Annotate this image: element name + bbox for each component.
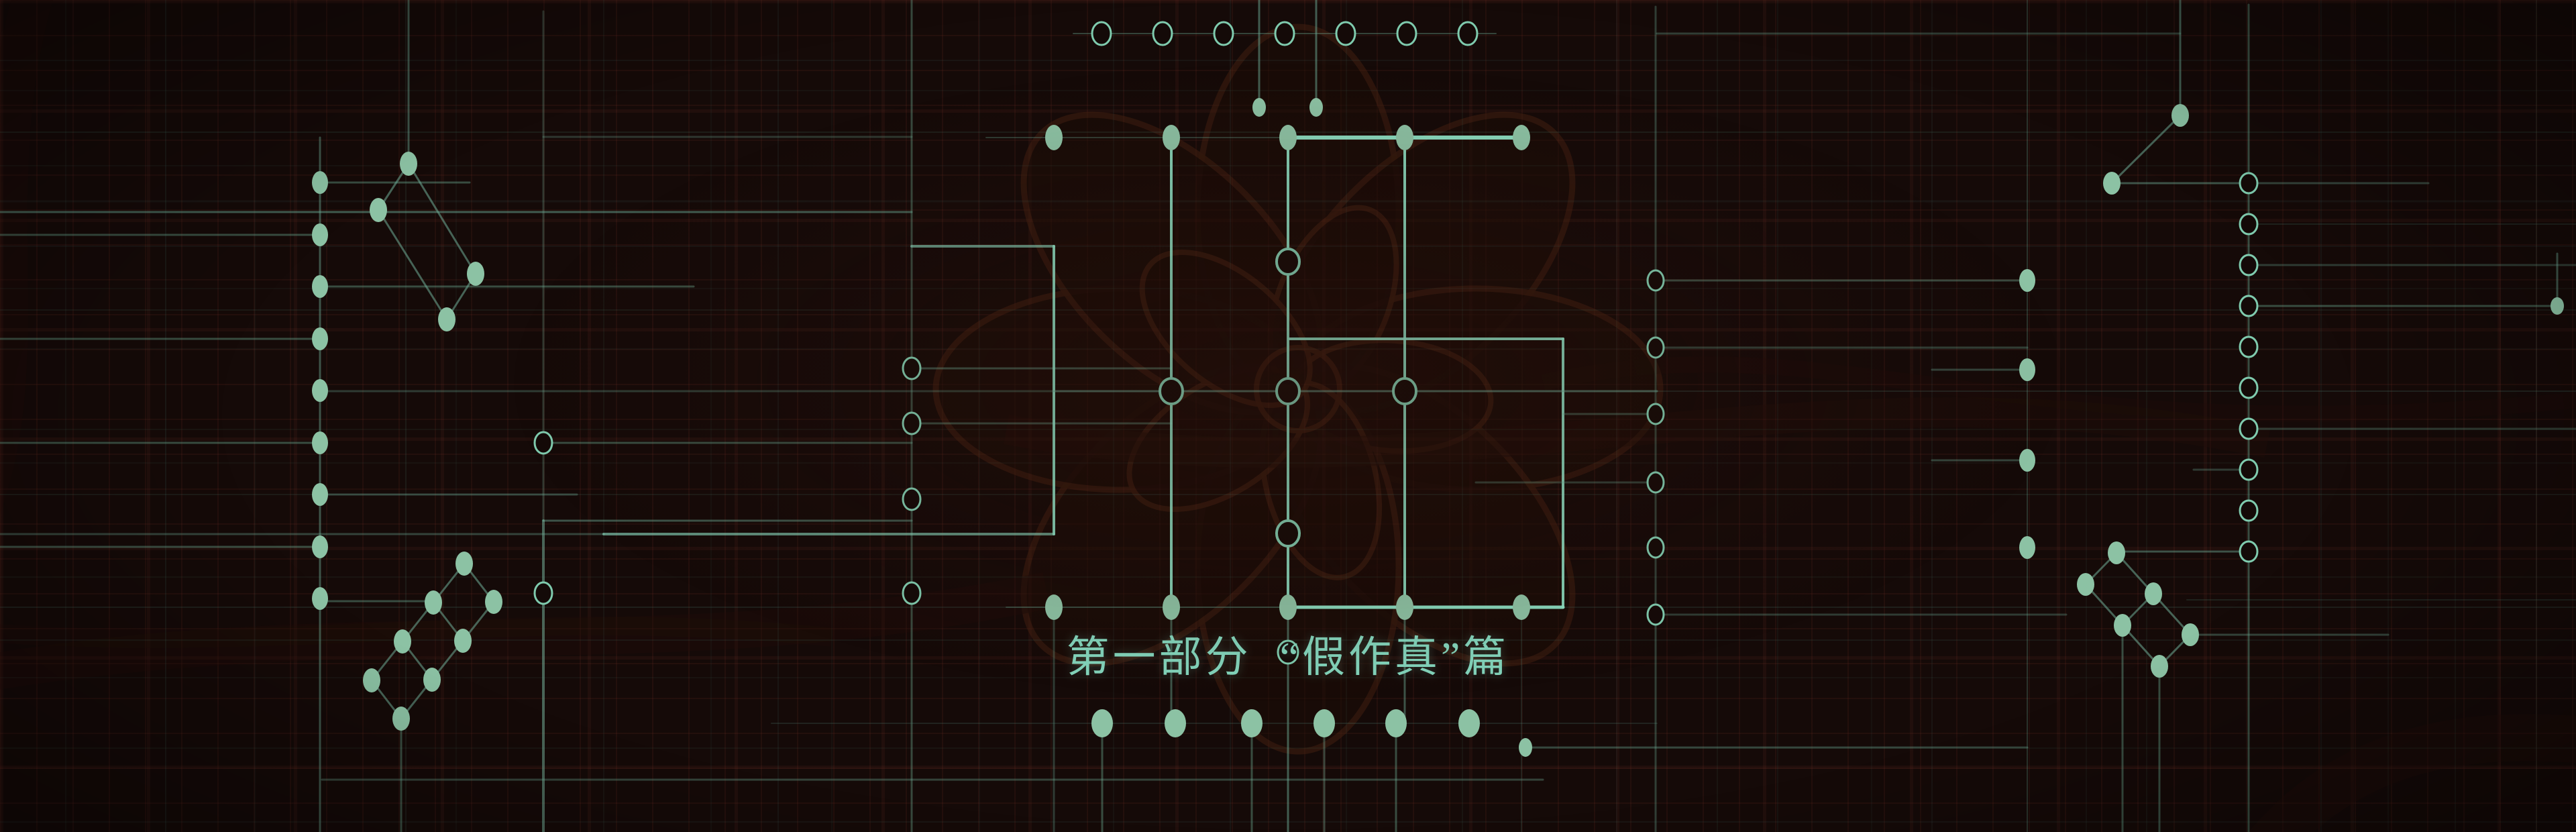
- circuit-node-ring: [903, 413, 920, 434]
- circuit-node-ring: [1648, 270, 1664, 291]
- circuit-node-dot: [1309, 98, 1323, 117]
- circuit-node-dot: [312, 223, 328, 246]
- circuit-node-dot: [1385, 709, 1407, 737]
- circuit-node-dot: [1513, 594, 1530, 620]
- circuit-node-dot: [2019, 358, 2035, 381]
- circuit-line: [409, 164, 476, 274]
- circuit-node-ring: [1393, 378, 1416, 404]
- circuit-node-ring: [1277, 521, 1299, 546]
- circuit-node-dot: [312, 587, 328, 610]
- circuit-node-ring: [1648, 472, 1664, 492]
- circuit-node-dot: [1396, 594, 1413, 620]
- circuit-node-dot: [1163, 594, 1180, 620]
- circuit-node-ring: [1277, 249, 1299, 274]
- circuit-node-ring: [1275, 22, 1294, 45]
- circuit-node-dot: [1241, 709, 1263, 737]
- circuit-node-ring: [903, 358, 920, 379]
- circuit-node-dot: [1045, 125, 1063, 150]
- circuit-node-ring: [2240, 501, 2257, 521]
- swoosh-left-edge: [0, 0, 40, 510]
- circuit-node-ring: [2240, 541, 2257, 562]
- circuit-node-dot: [1396, 125, 1413, 150]
- chapter-title-quote: “假作真”篇: [1280, 633, 1510, 681]
- circuit-node-dot: [370, 198, 387, 222]
- circuit-node-ring: [1277, 378, 1299, 404]
- circuit-node-ring: [535, 432, 552, 454]
- circuit-node-dot: [312, 327, 328, 350]
- circuit-node-dot: [1252, 98, 1266, 117]
- circuit-node-dot: [2551, 297, 2564, 315]
- circuit-node-dot: [455, 552, 473, 576]
- circuit-node-ring: [1092, 22, 1111, 45]
- circuit-node-ring: [2240, 419, 2257, 439]
- circuit-node-dot: [312, 171, 328, 194]
- circuit-node-dot: [425, 590, 442, 615]
- circuit-node-dot: [312, 535, 328, 558]
- circuit-node-ring: [1153, 22, 1172, 45]
- chapter-title-part: 第一部分: [1067, 633, 1252, 681]
- circuit-node-ring: [1458, 22, 1477, 45]
- circuit-node-dot: [1519, 738, 1532, 757]
- circuit-node-ring: [1397, 22, 1416, 45]
- circuit-node-dot: [2108, 541, 2125, 564]
- circuit-node-ring: [903, 582, 920, 604]
- circuit-node-dot: [2019, 269, 2035, 292]
- circuit-node-dot: [1513, 125, 1530, 150]
- circuit-node-dot: [1313, 709, 1335, 737]
- circuit-node-ring: [2240, 460, 2257, 480]
- circuit-node-dot: [438, 307, 455, 331]
- circuit-node-dot: [2019, 449, 2035, 472]
- circuit-node-ring: [535, 582, 552, 604]
- circuit-node-ring: [2240, 173, 2257, 193]
- circuit-node-dot: [312, 431, 328, 454]
- circuit-art-canvas: [0, 0, 2576, 832]
- circuit-node-ring: [1160, 378, 1183, 404]
- circuit-node-dot: [312, 275, 328, 298]
- circuit-node-ring: [1648, 605, 1664, 625]
- circuit-node-dot: [2077, 573, 2094, 596]
- circuit-node-ring: [2240, 337, 2257, 357]
- circuit-node-dot: [1091, 709, 1113, 737]
- chapter-title: 第一部分“假作真”篇: [0, 623, 2576, 684]
- swoosh-right-2: [1543, 364, 2576, 413]
- circuit-node-dot: [485, 590, 502, 614]
- circuit-node-ring: [2240, 214, 2257, 234]
- circuit-node-dot: [1279, 125, 1297, 150]
- circuit-line: [378, 210, 447, 319]
- circuit-node-dot: [312, 483, 328, 506]
- circuit-node-dot: [467, 262, 484, 286]
- circuit-node-ring: [1648, 337, 1664, 358]
- circuit-node-dot: [392, 707, 410, 731]
- circuit-node-dot: [1279, 594, 1297, 620]
- circuit-node-ring: [1336, 22, 1355, 45]
- circuit-node-ring: [1648, 537, 1664, 558]
- circuit-node-dot: [2019, 536, 2035, 559]
- circuit-node-ring: [1648, 404, 1664, 424]
- circuit-node-ring: [2240, 296, 2257, 316]
- circuit-node-dot: [2145, 582, 2162, 605]
- circuit-node-ring: [1214, 22, 1233, 45]
- circuit-node-dot: [1165, 709, 1186, 737]
- chapter-splash-screen: 第一部分“假作真”篇: [0, 0, 2576, 832]
- circuit-node-dot: [2171, 104, 2189, 127]
- circuit-node-ring: [2240, 255, 2257, 275]
- circuit-node-dot: [312, 379, 328, 402]
- circuit-node-dot: [1163, 125, 1180, 150]
- circuit-node-dot: [2103, 172, 2121, 195]
- circuit-node-dot: [1458, 709, 1480, 737]
- circuit-node-ring: [2240, 378, 2257, 398]
- circuit-node-ring: [903, 488, 920, 510]
- circuit-node-dot: [1045, 594, 1063, 620]
- circuit-node-dot: [400, 152, 417, 176]
